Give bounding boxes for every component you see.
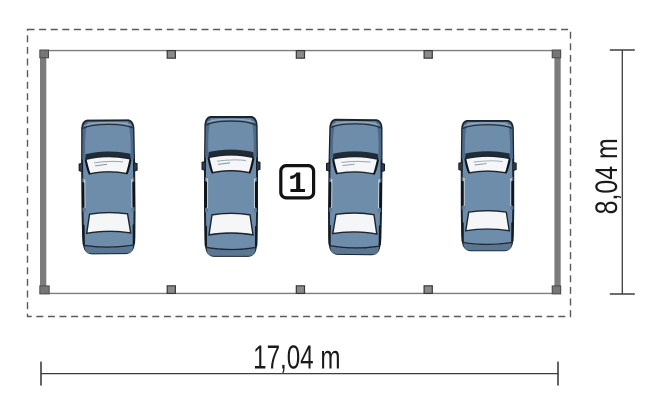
svg-text:17,04 m: 17,04 m [253,340,340,376]
svg-text:8,04 m: 8,04 m [589,138,625,214]
svg-text:1: 1 [288,168,306,202]
